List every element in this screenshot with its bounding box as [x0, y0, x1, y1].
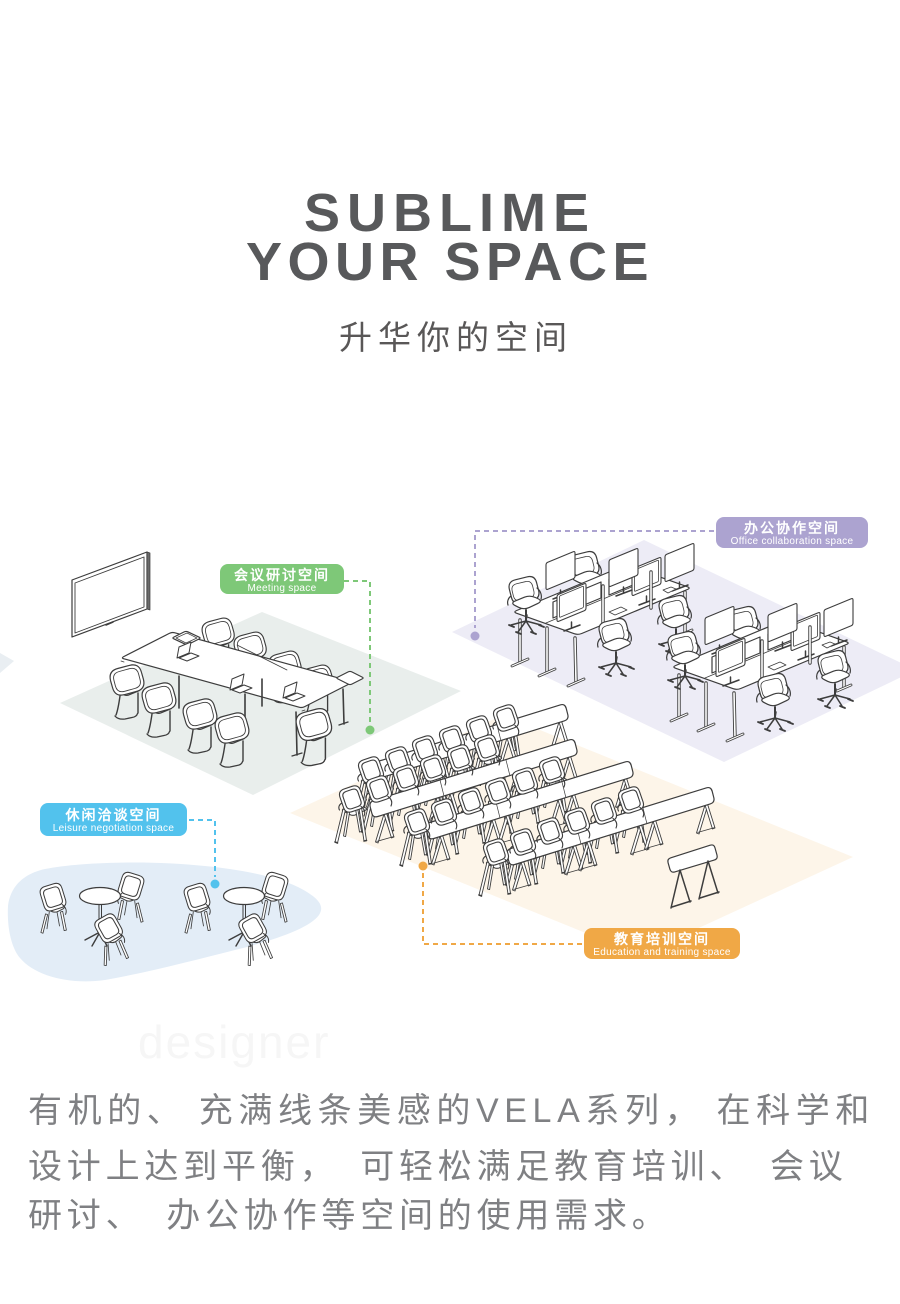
svg-text:designer: designer: [138, 1016, 330, 1068]
